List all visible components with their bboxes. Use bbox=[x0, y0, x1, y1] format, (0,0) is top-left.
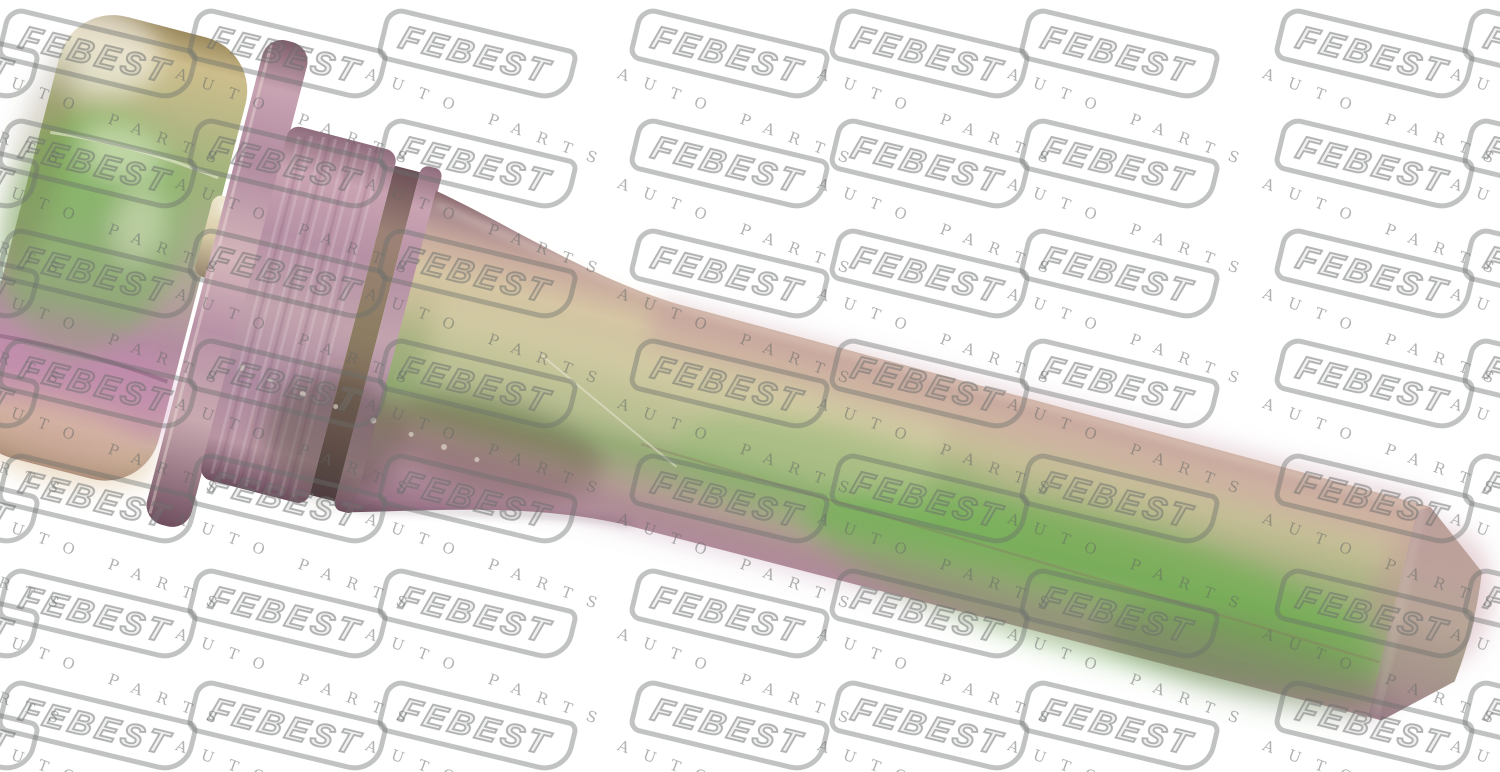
product-photo: FEBESTAUTO PARTSFEBESTAUTO PARTSFEBESTAU… bbox=[0, 0, 1500, 772]
caliper-guide-pin-image bbox=[0, 0, 1500, 772]
